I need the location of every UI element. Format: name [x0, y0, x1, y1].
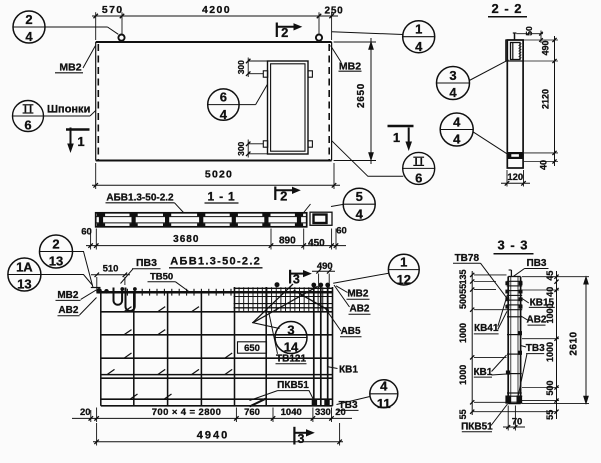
svg-text:120: 120	[507, 172, 523, 183]
svg-text:45: 45	[545, 271, 555, 281]
svg-text:4: 4	[356, 206, 364, 221]
svg-text:570: 570	[102, 4, 124, 16]
svg-text:ПКВ51: ПКВ51	[461, 421, 493, 432]
svg-text:АВ2: АВ2	[58, 305, 78, 316]
svg-text:700 × 4 = 2800: 700 × 4 = 2800	[152, 407, 222, 418]
svg-text:МВ2: МВ2	[347, 289, 369, 300]
svg-text:11: 11	[377, 396, 391, 411]
svg-text:1: 1	[77, 134, 84, 149]
svg-text:2: 2	[281, 25, 288, 40]
svg-text:2: 2	[52, 236, 59, 251]
svg-text:450: 450	[308, 238, 325, 249]
svg-text:6: 6	[24, 118, 31, 133]
svg-text:АБВ1.3-50-2.2: АБВ1.3-50-2.2	[106, 192, 174, 203]
svg-text:490: 490	[541, 40, 551, 55]
svg-text:4: 4	[449, 85, 457, 100]
svg-text:2610: 2610	[569, 331, 580, 355]
svg-text:КВ1: КВ1	[339, 365, 358, 376]
svg-text:55: 55	[545, 410, 555, 420]
svg-text:ПВ3: ПВ3	[136, 257, 157, 269]
svg-text:1: 1	[393, 130, 400, 145]
svg-text:60: 60	[81, 227, 92, 238]
svg-text:1 - 1: 1 - 1	[207, 189, 235, 203]
svg-text:55: 55	[458, 409, 468, 419]
svg-text:ПВ3: ПВ3	[527, 258, 547, 269]
svg-text:55: 55	[458, 284, 468, 294]
svg-text:1000: 1000	[458, 323, 468, 343]
svg-text:КВ1: КВ1	[473, 367, 492, 378]
svg-text:40: 40	[545, 287, 555, 297]
svg-text:4: 4	[25, 29, 33, 44]
svg-text:3: 3	[287, 322, 294, 337]
svg-text:ТВ78: ТВ78	[455, 253, 480, 264]
svg-text:ПКВ51: ПКВ51	[277, 380, 309, 391]
svg-text:5020: 5020	[205, 169, 233, 181]
svg-text:АБВ1.3-50-2.2: АБВ1.3-50-2.2	[170, 256, 261, 268]
svg-text:4200: 4200	[202, 4, 231, 16]
svg-text:12: 12	[397, 272, 411, 287]
svg-text:500: 500	[545, 380, 555, 395]
svg-text:1040: 1040	[281, 407, 302, 418]
svg-text:4940: 4940	[197, 429, 229, 441]
svg-text:ТВ121: ТВ121	[276, 354, 306, 365]
svg-text:3: 3	[298, 432, 305, 446]
svg-text:135: 135	[458, 269, 468, 284]
svg-text:ТВ3: ТВ3	[526, 343, 545, 354]
svg-text:4: 4	[453, 114, 461, 129]
svg-text:250: 250	[324, 6, 343, 17]
svg-text:3680: 3680	[173, 234, 199, 245]
svg-text:20: 20	[80, 407, 91, 418]
svg-text:4: 4	[220, 107, 228, 122]
svg-text:3: 3	[449, 68, 456, 83]
svg-text:2 - 2: 2 - 2	[491, 1, 522, 16]
svg-text:КВ41: КВ41	[474, 323, 499, 334]
svg-text:70: 70	[512, 417, 523, 428]
svg-text:50: 50	[524, 26, 534, 36]
svg-text:650: 650	[244, 343, 260, 354]
svg-text:МВ2: МВ2	[57, 290, 79, 301]
svg-text:4: 4	[453, 132, 461, 147]
svg-text:300: 300	[236, 141, 246, 155]
svg-text:510: 510	[103, 264, 119, 275]
svg-text:2120: 2120	[541, 89, 551, 109]
svg-text:6: 6	[220, 89, 227, 104]
svg-text:40: 40	[539, 160, 549, 170]
svg-text:3: 3	[293, 272, 300, 286]
svg-text:890: 890	[279, 236, 296, 247]
svg-text:1: 1	[415, 22, 422, 37]
svg-text:АВ2: АВ2	[526, 315, 546, 326]
svg-text:АВ5: АВ5	[341, 326, 361, 337]
svg-text:5: 5	[356, 189, 363, 204]
svg-text:Шпонки: Шпонки	[47, 104, 90, 116]
svg-text:13: 13	[49, 254, 63, 269]
svg-text:14: 14	[284, 340, 299, 355]
svg-text:330: 330	[315, 407, 331, 418]
svg-text:300: 300	[236, 60, 246, 74]
svg-text:2: 2	[280, 189, 287, 204]
svg-text:ТВ50: ТВ50	[150, 272, 173, 283]
svg-text:20: 20	[335, 407, 346, 418]
svg-text:4: 4	[415, 39, 423, 54]
svg-text:2: 2	[25, 12, 32, 27]
svg-text:МВ2: МВ2	[59, 61, 81, 73]
svg-text:2650: 2650	[356, 83, 367, 108]
svg-text:4: 4	[380, 379, 388, 394]
svg-text:500: 500	[458, 294, 468, 309]
svg-text:1А: 1А	[16, 259, 33, 274]
svg-text:13: 13	[17, 277, 31, 292]
svg-text:МВ2: МВ2	[339, 60, 361, 72]
svg-text:760: 760	[244, 407, 260, 418]
svg-text:3 - 3: 3 - 3	[497, 237, 528, 252]
svg-text:1000: 1000	[458, 365, 468, 385]
svg-text:60: 60	[336, 226, 347, 237]
svg-text:1000: 1000	[545, 342, 555, 362]
svg-text:АВ2: АВ2	[349, 303, 369, 314]
svg-text:1: 1	[400, 254, 407, 269]
svg-text:6: 6	[415, 171, 422, 186]
